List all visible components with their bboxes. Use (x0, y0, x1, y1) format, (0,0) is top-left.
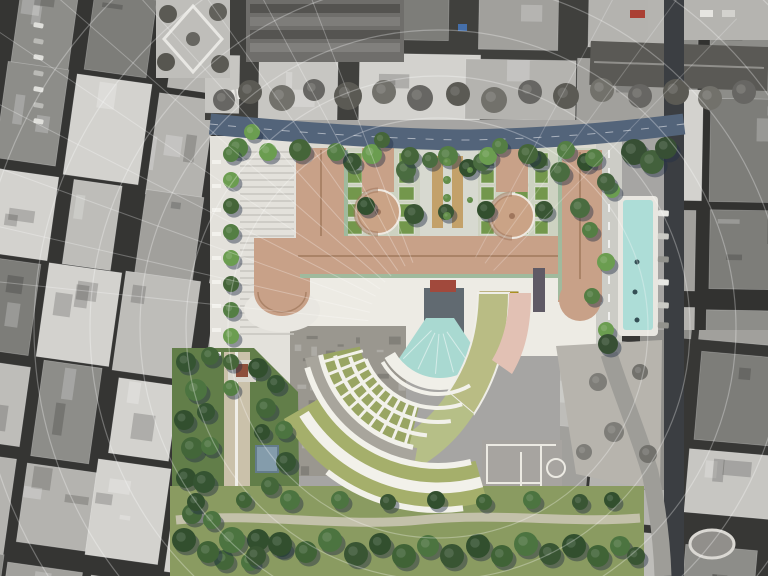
aerial-masterplan-image (0, 0, 768, 576)
masterplan-svg (0, 0, 768, 576)
atmosphere-tint (0, 0, 768, 576)
